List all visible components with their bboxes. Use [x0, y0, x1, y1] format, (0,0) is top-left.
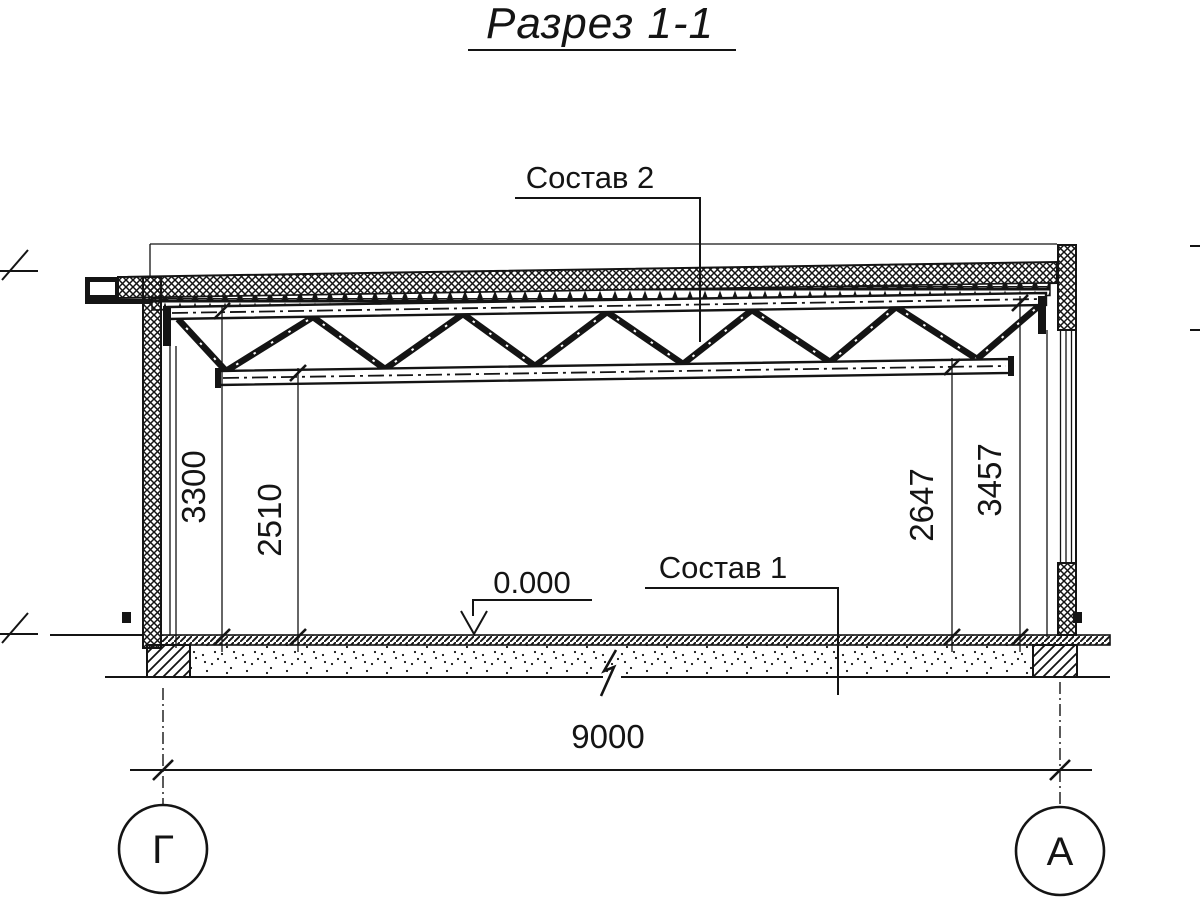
floor-assembly — [50, 635, 1110, 696]
floor-screed — [161, 635, 1110, 645]
truss-end-plate-right — [1008, 356, 1014, 376]
elevation-tick-left-bottom-icon — [2, 613, 28, 643]
level-mark-label: 0.000 — [493, 565, 571, 600]
level-mark: 0.000 — [461, 565, 592, 634]
truss-support-bracket-left — [163, 306, 171, 346]
dim-right-outer: 3457 — [971, 443, 1008, 516]
drawing-title: Разрез 1-1 — [468, 0, 736, 50]
elevation-tick-left-top-icon — [2, 250, 28, 280]
section-title: Разрез 1-1 — [486, 0, 714, 48]
right-wall — [1047, 245, 1082, 637]
right-parapet — [1058, 245, 1076, 330]
axis-markers: Г А — [119, 805, 1104, 895]
dim-right-inner: 2647 — [903, 468, 940, 541]
axis-marker-left: Г — [152, 828, 174, 872]
axis-marker-right: А — [1047, 830, 1074, 874]
dim-left-inner: 2510 — [251, 483, 288, 556]
right-base-fixing — [1073, 612, 1082, 623]
dim-left-outer: 3300 — [175, 450, 212, 523]
vertical-dimensions: 3300 2510 2647 3457 — [175, 295, 1028, 652]
floor-callout-label: Состав 1 — [659, 550, 788, 585]
section-drawing: Разрез 1-1 — [0, 0, 1200, 900]
right-wall-lower — [1058, 563, 1076, 635]
dim-span: 9000 — [571, 718, 644, 755]
roof-callout-label: Состав 2 — [526, 160, 655, 195]
foundation-right — [1033, 645, 1077, 677]
span-dimension: 9000 — [130, 682, 1092, 806]
foundation-left — [147, 645, 190, 677]
truss-end-plate-left — [215, 368, 221, 388]
left-base-fixing — [122, 612, 131, 623]
section-drawing-sheet: Разрез 1-1 — [0, 0, 1200, 900]
truss-support-bracket-right — [1038, 296, 1046, 334]
